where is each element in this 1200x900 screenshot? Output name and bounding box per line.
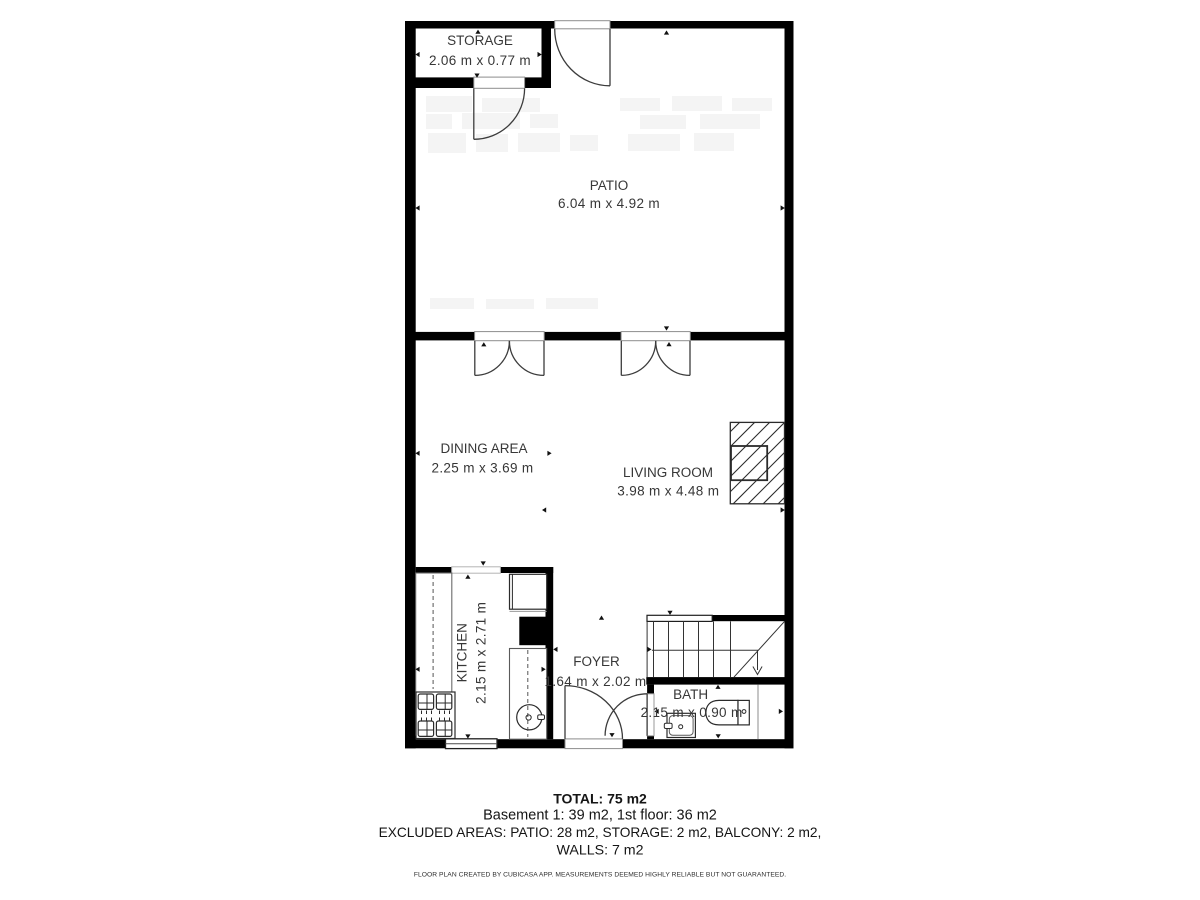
svg-text:2.15 m x 2.71 m: 2.15 m x 2.71 m bbox=[474, 602, 489, 704]
svg-text:LIVING ROOM: LIVING ROOM bbox=[623, 465, 713, 480]
svg-text:1.64 m x 2.02 m: 1.64 m x 2.02 m bbox=[544, 674, 646, 689]
svg-text:6.04 m x 4.92 m: 6.04 m x 4.92 m bbox=[558, 196, 660, 211]
svg-text:EXCLUDED AREAS: PATIO: 28 m2,: EXCLUDED AREAS: PATIO: 28 m2, STORAGE: 2… bbox=[379, 825, 822, 840]
svg-text:PATIO: PATIO bbox=[590, 178, 629, 193]
svg-text:FOYER: FOYER bbox=[573, 654, 620, 669]
svg-text:2.25 m x 3.69 m: 2.25 m x 3.69 m bbox=[431, 461, 533, 476]
svg-text:2.15 m x 0.90 m: 2.15 m x 0.90 m bbox=[641, 705, 743, 720]
svg-text:STORAGE: STORAGE bbox=[447, 33, 513, 48]
svg-text:WALLS: 7 m2: WALLS: 7 m2 bbox=[557, 843, 644, 859]
svg-text:Basement 1: 39 m2, 1st floor:: Basement 1: 39 m2, 1st floor: 36 m2 bbox=[483, 808, 717, 824]
svg-text:3.98 m x 4.48 m: 3.98 m x 4.48 m bbox=[617, 484, 719, 499]
svg-text:KITCHEN: KITCHEN bbox=[455, 623, 470, 682]
svg-text:FLOOR PLAN CREATED BY CUBICASA: FLOOR PLAN CREATED BY CUBICASA APP. MEAS… bbox=[414, 872, 786, 879]
svg-text:TOTAL: 75 m2: TOTAL: 75 m2 bbox=[553, 791, 647, 807]
svg-text:2.06 m x 0.77 m: 2.06 m x 0.77 m bbox=[429, 53, 531, 68]
svg-text:BATH: BATH bbox=[673, 687, 708, 702]
svg-text:DINING AREA: DINING AREA bbox=[440, 441, 527, 456]
